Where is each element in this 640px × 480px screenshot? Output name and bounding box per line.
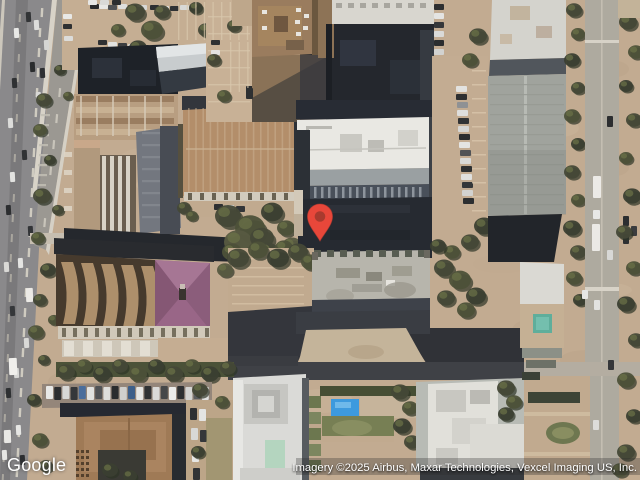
svg-text:Google: Google	[7, 455, 66, 475]
svg-text:Imagery ©2025 Airbus, Maxar Te: Imagery ©2025 Airbus, Maxar Technologies…	[292, 462, 637, 474]
